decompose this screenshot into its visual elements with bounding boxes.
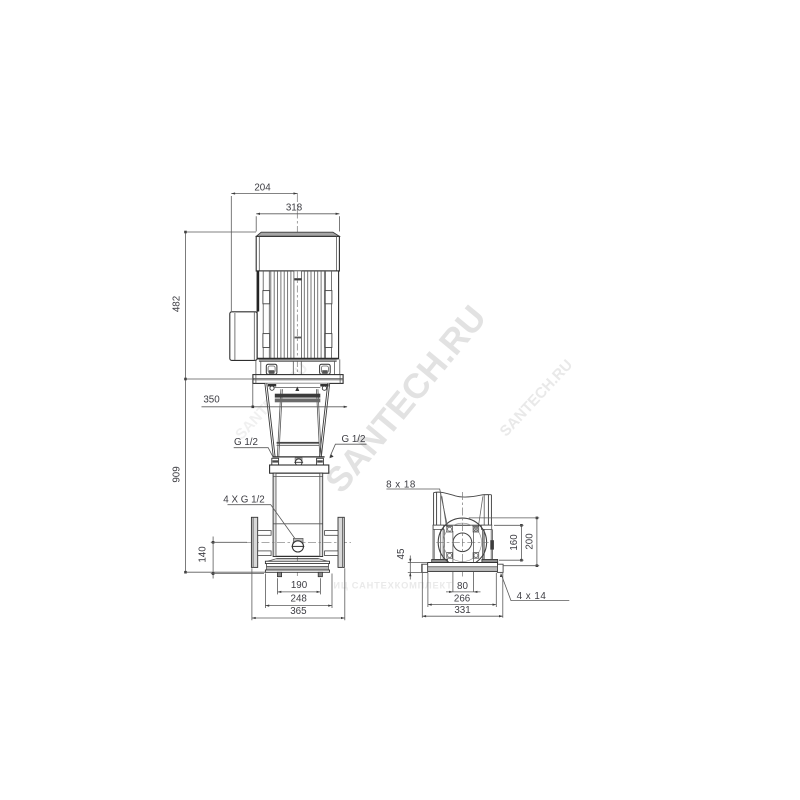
svg-text:909: 909 <box>172 466 183 482</box>
svg-text:80: 80 <box>457 581 468 592</box>
svg-text:4 X G 1/2: 4 X G 1/2 <box>223 495 264 506</box>
svg-text:ИЦ САНТЕХКОМПЛЕКТ: ИЦ САНТЕХКОМПЛЕКТ <box>333 581 452 591</box>
svg-text:160: 160 <box>509 534 520 551</box>
svg-text:365: 365 <box>290 606 307 617</box>
svg-text:266: 266 <box>454 594 471 605</box>
svg-text:45: 45 <box>396 548 407 559</box>
svg-text:G 1/2: G 1/2 <box>234 437 258 448</box>
svg-text:4 x 14: 4 x 14 <box>517 591 547 602</box>
svg-text:G 1/2: G 1/2 <box>342 434 366 445</box>
svg-text:248: 248 <box>291 594 308 605</box>
svg-text:350: 350 <box>203 395 220 406</box>
svg-text:482: 482 <box>172 296 183 312</box>
svg-text:204: 204 <box>254 183 271 194</box>
svg-text:331: 331 <box>454 605 470 616</box>
svg-text:318: 318 <box>286 203 303 214</box>
svg-text:190: 190 <box>291 580 308 591</box>
svg-text:140: 140 <box>197 546 208 563</box>
svg-text:200: 200 <box>524 533 535 550</box>
